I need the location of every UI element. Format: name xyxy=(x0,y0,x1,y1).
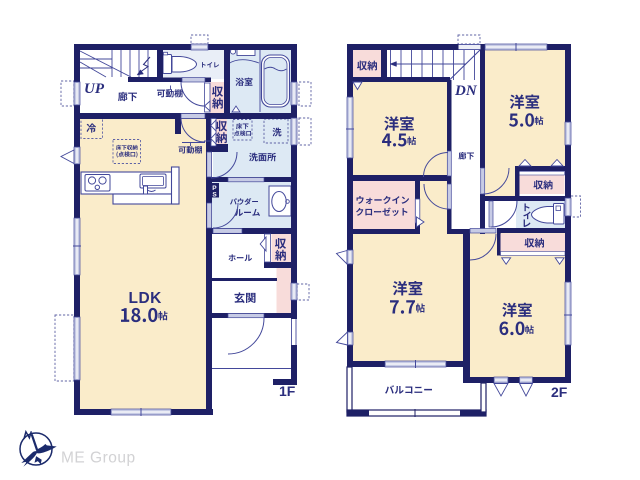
svg-text:S: S xyxy=(212,192,217,199)
svg-text:2F: 2F xyxy=(551,384,568,400)
svg-text:DN: DN xyxy=(454,83,478,99)
svg-text:1F: 1F xyxy=(279,383,296,399)
svg-text:UP: UP xyxy=(84,81,105,97)
svg-text:ME Group: ME Group xyxy=(61,450,136,467)
svg-text:LDK: LDK xyxy=(129,290,163,307)
